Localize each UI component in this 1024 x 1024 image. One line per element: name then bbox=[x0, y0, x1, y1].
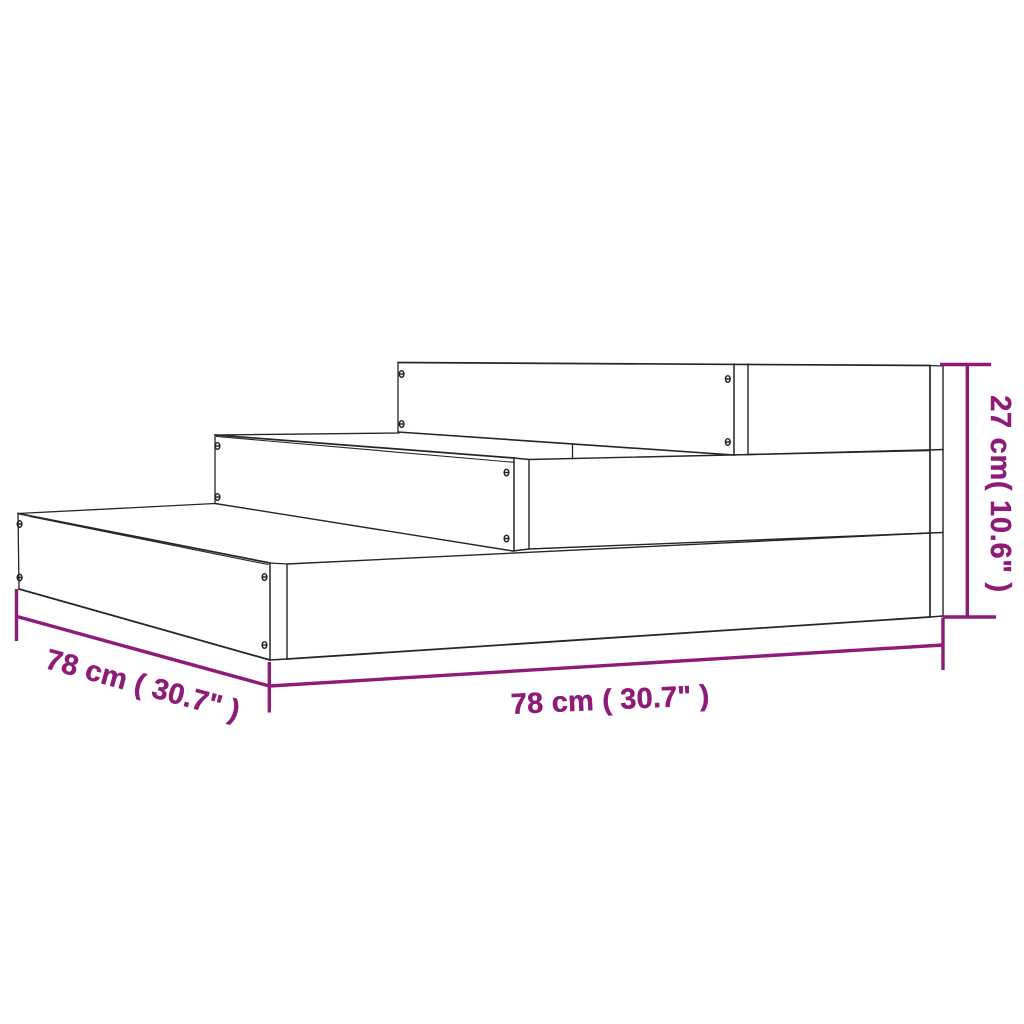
svg-text:27 cm( 10.6" ): 27 cm( 10.6" ) bbox=[984, 395, 1016, 593]
